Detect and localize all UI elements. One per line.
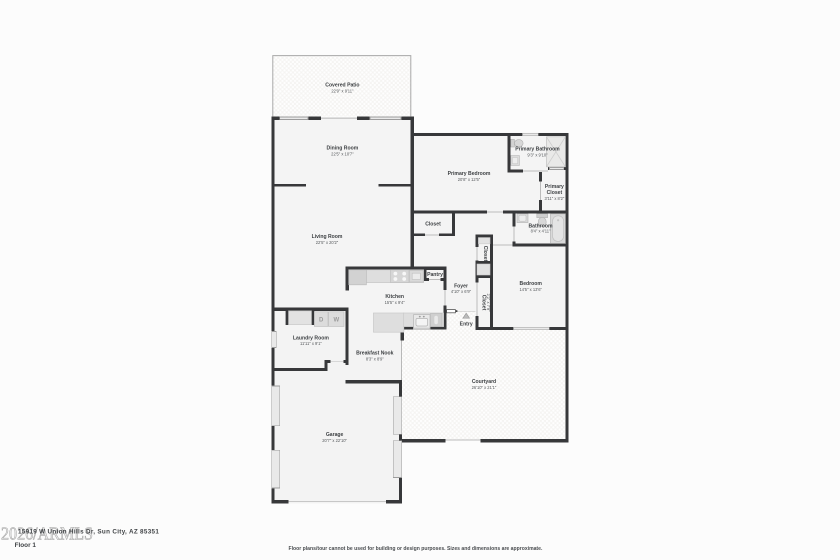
svg-text:Courtyard: Courtyard xyxy=(472,379,496,385)
svg-text:Pantry: Pantry xyxy=(427,272,443,278)
svg-text:8'4" x 4'11": 8'4" x 4'11" xyxy=(531,228,551,233)
svg-text:4'10" x 6'9": 4'10" x 6'9" xyxy=(451,289,472,294)
svg-text:Entry: Entry xyxy=(460,321,473,327)
svg-text:9'3" x 9'10": 9'3" x 9'10" xyxy=(527,153,548,158)
svg-text:11'11" x 9'1": 11'11" x 9'1" xyxy=(300,341,322,346)
svg-text:Primary: Primary xyxy=(545,184,564,190)
svg-text:3'11" x 8'2": 3'11" x 8'2" xyxy=(544,196,564,201)
svg-text:2'2" x 7'9": 2'2" x 7'9" xyxy=(486,294,491,312)
svg-text:22'9" x 9'11": 22'9" x 9'11" xyxy=(331,88,354,93)
svg-text:Closet: Closet xyxy=(482,246,488,262)
svg-text:Closet: Closet xyxy=(481,295,487,311)
svg-text:8'3" x 8'9": 8'3" x 8'9" xyxy=(366,356,384,361)
svg-text:D: D xyxy=(319,318,324,324)
svg-text:W: W xyxy=(333,318,339,324)
svg-text:26'10" x 21'1": 26'10" x 21'1" xyxy=(472,385,497,390)
svg-text:Floor 1: Floor 1 xyxy=(15,542,37,549)
svg-text:20'7" x 22'10": 20'7" x 22'10" xyxy=(322,438,347,443)
svg-text:14'5" x 13'6": 14'5" x 13'6" xyxy=(519,287,542,292)
svg-text:15'5" x 9'4": 15'5" x 9'4" xyxy=(385,300,406,305)
svg-text:22'5" x 10'7": 22'5" x 10'7" xyxy=(331,151,354,156)
svg-text:Closet: Closet xyxy=(425,221,441,227)
svg-text:15919 W Union Hills Dr, Sun Ci: 15919 W Union Hills Dr, Sun City, AZ 853… xyxy=(18,529,159,536)
svg-text:20'8" x 12'5": 20'8" x 12'5" xyxy=(458,177,481,182)
svg-text:22'5" x 20'2": 22'5" x 20'2" xyxy=(316,240,339,245)
svg-text:Floor plans/tour cannot be use: Floor plans/tour cannot be used for buil… xyxy=(289,546,543,552)
